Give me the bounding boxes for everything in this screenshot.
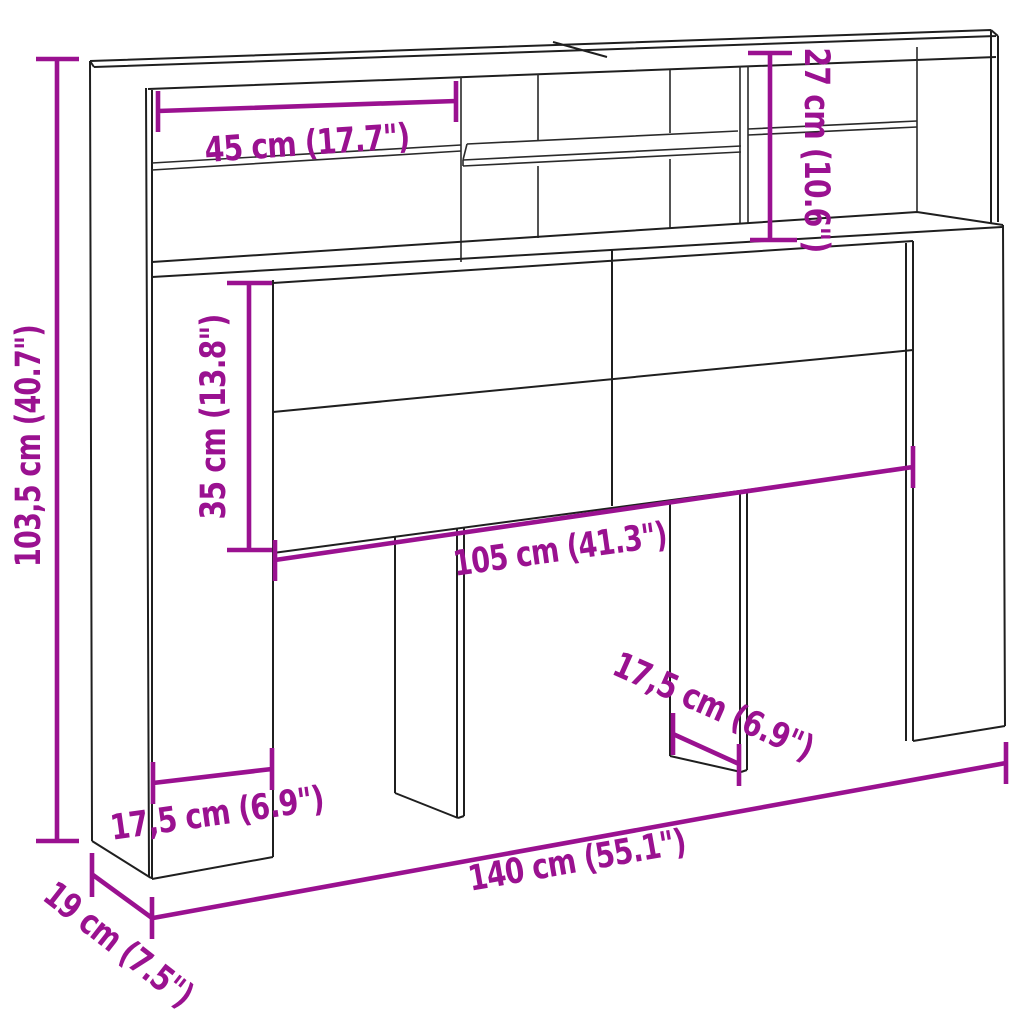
headboard-diagram-svg: 45 cm (17.7") 27 cm (10.6") 103,5 cm (40… [0, 0, 1024, 1024]
dim-front-panel-height: 35 cm (13.8") [194, 283, 272, 550]
dim-top-shelf-width: 45 cm (17.7") [158, 81, 456, 171]
dimension-diagram: 45 cm (17.7") 27 cm (10.6") 103,5 cm (40… [0, 0, 1024, 1024]
dim-overall-height-label: 103,5 cm (40.7") [9, 325, 49, 567]
front-panel [273, 241, 913, 741]
dim-top-compartment-height-label: 27 cm (10.6") [796, 48, 836, 253]
left-side-panel [90, 61, 152, 879]
dim-overall-height: 103,5 cm (40.7") [9, 59, 79, 841]
dim-left-column-width: 17,5 cm (6.9") [108, 748, 326, 849]
hutch-floor [152, 212, 1003, 277]
hutch-top-slab [90, 30, 998, 89]
dim-overall-width: 140 cm (55.1") [152, 742, 1006, 939]
dim-left-column-width-label: 17,5 cm (6.9") [108, 779, 326, 849]
right-column-leg [913, 30, 1005, 741]
dim-overall-depth: 19 cm (7.5") [36, 853, 201, 1016]
dim-overall-width-label: 140 cm (55.1") [465, 822, 689, 900]
dim-front-panel-height-label: 35 cm (13.8") [194, 315, 234, 520]
dim-front-panel-width: 105 cm (41.3") [275, 446, 913, 585]
dim-top-shelf-width-label: 45 cm (17.7") [203, 117, 410, 171]
